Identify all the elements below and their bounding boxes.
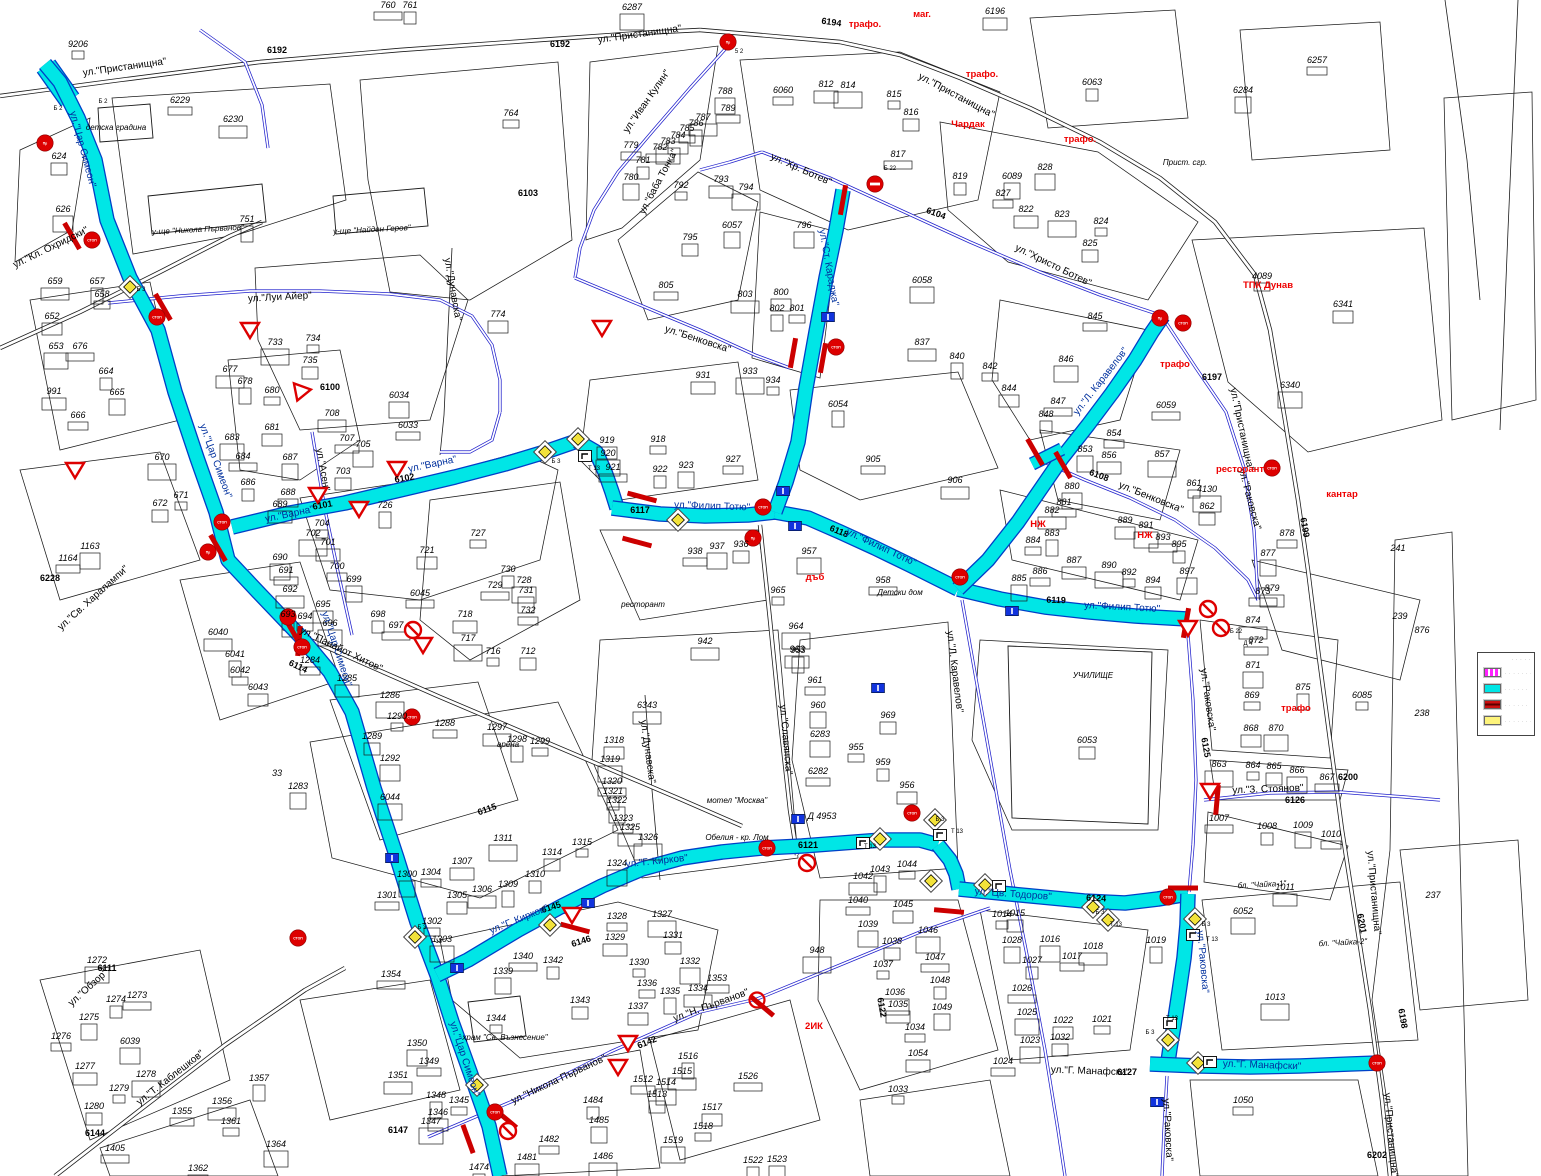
road-code: 6198 xyxy=(1396,1008,1409,1029)
building-footprint xyxy=(1095,228,1107,236)
legend-title: . . . . . xyxy=(1484,656,1531,664)
building-footprint xyxy=(877,971,889,979)
parcel-number: 1018 xyxy=(1083,941,1103,951)
building-footprint xyxy=(72,51,84,59)
parcel-number: 672 xyxy=(152,498,167,508)
building-footprint xyxy=(502,891,514,907)
parcel-number: 803 xyxy=(737,289,752,299)
parcel-number: 1292 xyxy=(380,753,400,763)
parcel-number: 686 xyxy=(240,477,255,487)
sign-code-label: Б 3 xyxy=(552,459,562,465)
parcel-number: 6063 xyxy=(1082,77,1102,87)
building-footprint xyxy=(379,512,391,528)
parcel-number: 1300 xyxy=(397,869,417,879)
parcel-number: 1008 xyxy=(1257,821,1277,831)
yield-sign-icon xyxy=(241,323,259,338)
road-code: 6147 xyxy=(388,1125,408,1135)
sign-code-label: 5 2 xyxy=(735,49,744,55)
building-footprint xyxy=(982,373,998,381)
building-footprint xyxy=(1082,250,1098,262)
parcel-number: 854 xyxy=(1106,428,1121,438)
yield-sign-icon xyxy=(414,638,432,653)
stop-sign-label: СТОП xyxy=(907,811,917,815)
parcel-number: 825 xyxy=(1082,238,1098,248)
parcel-number: 991 xyxy=(46,386,61,396)
parcel-number: 1486 xyxy=(593,1151,613,1161)
building-footprint xyxy=(848,754,864,762)
building-footprint xyxy=(318,420,346,432)
building-footprint xyxy=(810,712,826,728)
sign-code-label: Б 2 xyxy=(99,99,109,105)
parcel-number: 1164 xyxy=(58,553,77,563)
parcel-number: 6045 xyxy=(410,588,431,598)
parcel-number: 694 xyxy=(297,611,312,621)
parcel-number: 689 xyxy=(272,499,287,509)
building-footprint xyxy=(921,964,949,972)
stop-sign-label: СТОП xyxy=(87,238,97,242)
facility-red-label: ТПК Дунав xyxy=(1243,280,1293,291)
parcel-number: 1364 xyxy=(266,1139,286,1149)
parcel-number: 1049 xyxy=(932,1002,952,1012)
road-code: 6200 xyxy=(1338,772,1358,782)
parcel-number: 687 xyxy=(282,452,298,462)
building-footprint xyxy=(805,687,825,695)
building-footprint xyxy=(1249,598,1277,606)
parcel-number: 897 xyxy=(1179,566,1195,576)
street-name-label: ул."Раковска" xyxy=(1198,668,1218,732)
parcel-number: 1334 xyxy=(688,983,708,993)
parcel-number: 842 xyxy=(982,361,997,371)
parcel-number: 927 xyxy=(725,454,741,464)
building-footprint xyxy=(518,617,538,625)
building-footprint xyxy=(1231,918,1255,934)
parcel-number: 938 xyxy=(687,546,702,556)
parcel-number: 1522 xyxy=(743,1155,763,1165)
parcel-number: 1288 xyxy=(435,718,455,728)
parcel-number: 6085 xyxy=(1352,690,1373,700)
parcel-number: 691 xyxy=(278,565,293,575)
building-footprint xyxy=(1243,672,1263,688)
building-footprint xyxy=(346,586,362,602)
building-footprint xyxy=(481,592,509,600)
parcel-number: 1290 xyxy=(387,711,407,721)
road-code: 6126 xyxy=(1285,795,1305,805)
parcel-number: 817 xyxy=(890,149,906,159)
building-footprint xyxy=(880,722,896,734)
building-footprint xyxy=(897,792,917,804)
building-footprint xyxy=(80,553,100,569)
building-footprint xyxy=(806,778,830,786)
road-code: 6144 xyxy=(85,1128,105,1138)
parcel-number: 730 xyxy=(500,564,515,574)
building-footprint xyxy=(335,478,351,490)
road-closure-bar-marker xyxy=(1168,886,1198,891)
sign-code-label: Б 3 xyxy=(1096,910,1106,916)
legend-swatch-magenta xyxy=(1484,668,1501,677)
parcel-number: 1362 xyxy=(188,1163,208,1173)
building-footprint xyxy=(832,411,844,427)
building-footprint xyxy=(1014,216,1038,228)
sign-code-label: Т 13 xyxy=(864,844,877,850)
parcel-number: 942 xyxy=(697,636,712,646)
parcel-number: 734 xyxy=(305,333,320,343)
parcel-number: 964 xyxy=(788,621,803,631)
sign-code-label: Т 13 xyxy=(951,829,964,835)
poi-label: Прист. сгр. xyxy=(1163,158,1207,167)
parcel-number: 1163 xyxy=(80,541,99,551)
parcel-number: 6287 xyxy=(622,2,643,12)
parcel-number: 239 xyxy=(1391,611,1407,621)
parcel-number: 681 xyxy=(264,422,279,432)
building-footprint xyxy=(223,1128,239,1136)
building-footprint xyxy=(905,1034,925,1042)
parcel-number: 1485 xyxy=(589,1115,610,1125)
building-footprint xyxy=(1205,825,1233,833)
building-footprint xyxy=(1123,579,1135,587)
parcel-number: 6284 xyxy=(1233,85,1253,95)
parcel-number: 1045 xyxy=(893,899,914,909)
road-code: 6117 xyxy=(630,505,650,515)
building-footprint xyxy=(772,597,784,605)
parcel-number: 1279 xyxy=(109,1083,129,1093)
parcel-number: 1286 xyxy=(380,690,400,700)
building-footprint xyxy=(769,1166,785,1176)
building-footprint xyxy=(951,363,963,379)
building-footprint xyxy=(1115,527,1135,539)
building-footprint xyxy=(264,397,280,405)
parcel-number: 1329 xyxy=(605,932,625,942)
parcel-number: 1322 xyxy=(607,795,627,805)
parcel-number: 653 xyxy=(48,341,63,351)
building-footprint xyxy=(539,1146,559,1154)
parcel-number: 1023 xyxy=(1020,1035,1040,1045)
sign-code-label: Б 22 xyxy=(1230,629,1243,635)
parcel-number: 676 xyxy=(72,341,87,351)
building-footprint xyxy=(468,896,496,908)
building-footprint xyxy=(547,967,559,979)
building-footprint xyxy=(488,321,508,333)
parcel-number: 700 xyxy=(329,561,344,571)
parcel-number: 782 xyxy=(652,142,667,152)
parcel-number: 837 xyxy=(914,337,930,347)
parcel-number: 718 xyxy=(457,609,472,619)
parcel-number: 726 xyxy=(377,500,392,510)
parcel-number: 33 xyxy=(272,768,282,778)
parcel-number: 1046 xyxy=(918,925,938,935)
parcel-number: 824 xyxy=(1093,216,1108,226)
building-footprint xyxy=(993,200,1013,208)
building-footprint xyxy=(1273,894,1297,906)
parcel-number: 6058 xyxy=(912,275,932,285)
sign-code-label: Б 2 xyxy=(54,106,64,112)
parcel-number: 1021 xyxy=(1092,1014,1112,1024)
parcel-number: 884 xyxy=(1025,535,1040,545)
facility-red-label: трафо. xyxy=(1064,134,1096,145)
stop-sign-label: Пр xyxy=(726,40,731,44)
building-footprint xyxy=(589,1163,617,1176)
building-footprint xyxy=(453,621,477,633)
building-footprint xyxy=(353,451,373,467)
building-footprint xyxy=(1307,67,1327,75)
parcel-number: 1513 xyxy=(647,1089,667,1099)
parcel-number: 657 xyxy=(89,276,105,286)
parcel-block xyxy=(1190,1080,1378,1176)
parcel-number: 659 xyxy=(47,276,62,286)
parcel-number: 955 xyxy=(848,742,864,752)
building-footprint xyxy=(1052,1044,1068,1056)
parcel-block xyxy=(255,255,468,430)
parcel-number: 934 xyxy=(765,375,780,385)
parcel-number: 1311 xyxy=(493,833,512,843)
parcel-number: 1514 xyxy=(656,1077,676,1087)
parcel-number: 890 xyxy=(1101,560,1116,570)
parcel-number: 1332 xyxy=(680,956,700,966)
parcel-number: 624 xyxy=(51,151,66,161)
building-footprint xyxy=(654,292,678,300)
parcel-number: 1349 xyxy=(419,1056,439,1066)
parcel-number: 6052 xyxy=(1233,906,1253,916)
parcel-number: 963 xyxy=(789,644,804,654)
building-footprint xyxy=(916,937,940,953)
road-code: 6192 xyxy=(550,39,570,49)
building-footprint xyxy=(628,1013,648,1025)
building-footprint xyxy=(1233,1107,1253,1115)
parcel-number: 1481 xyxy=(517,1152,537,1162)
no-entry-bar xyxy=(870,183,880,186)
street-name-label: ул."Обзор" xyxy=(66,966,111,1008)
parcel-number: 9206 xyxy=(68,39,88,49)
building-footprint xyxy=(509,963,537,971)
parcel-number: 788 xyxy=(717,86,732,96)
parcel-number: 882 xyxy=(1044,505,1059,515)
parcel-number: 1326 xyxy=(638,832,658,842)
road-code: 6115 xyxy=(476,801,498,817)
parcel-number: 1357 xyxy=(249,1073,270,1083)
building-footprint xyxy=(903,119,919,131)
building-footprint xyxy=(675,192,687,200)
building-footprint xyxy=(253,1085,265,1101)
parcel-number: 237 xyxy=(1424,890,1441,900)
sign-code-label: Т 13 xyxy=(1110,922,1123,928)
yield-sign-icon xyxy=(593,321,611,336)
parcel-number: 870 xyxy=(1268,723,1283,733)
parcel-number: 1336 xyxy=(637,978,657,988)
facility-red-label: Чардак xyxy=(951,119,985,130)
parcel-number: 1526 xyxy=(738,1071,758,1081)
parcel-number: 1515 xyxy=(672,1066,693,1076)
parcel-number: 702 xyxy=(305,528,320,538)
road-code: 6199 xyxy=(1298,517,1311,538)
building-footprint xyxy=(767,387,779,395)
parcel-number: 801 xyxy=(789,303,804,313)
parcel-number: 1301 xyxy=(377,890,397,900)
parcel-number: 1047 xyxy=(925,952,946,962)
info-sign-glyph xyxy=(587,900,589,906)
yield-sign-icon xyxy=(289,383,311,403)
parcel-number: 1325 xyxy=(620,822,641,832)
building-footprint xyxy=(495,978,511,994)
parcel-number: 1016 xyxy=(1040,934,1060,944)
road-code: 6194 xyxy=(821,16,842,29)
parcel-number: 6257 xyxy=(1307,55,1328,65)
road-code: 6103 xyxy=(518,188,538,198)
parcel-number: 828 xyxy=(1037,162,1052,172)
street-name-label: ул."Хр. Ботев" xyxy=(769,151,834,188)
stop-sign-label: СТОП xyxy=(831,345,841,349)
building-footprint xyxy=(908,349,936,361)
building-footprint xyxy=(954,183,966,195)
info-sign-glyph xyxy=(391,855,393,861)
parcel-number: 792 xyxy=(673,180,688,190)
parcel-number: 665 xyxy=(109,387,125,397)
building-footprint xyxy=(1333,311,1353,323)
parcel-number: 1523 xyxy=(767,1154,787,1164)
parcel-block xyxy=(860,1080,1010,1176)
building-footprint xyxy=(607,923,627,931)
minor-line xyxy=(1445,0,1480,300)
parcel-number: 1319 xyxy=(600,754,620,764)
map-legend: . . . . . . . . . . . . . . . . . . . . … xyxy=(1477,652,1535,736)
building-footprint xyxy=(66,353,94,361)
sign-code-label: Б 3 xyxy=(137,287,147,293)
parcel-number: 868 xyxy=(1243,723,1258,733)
building-footprint xyxy=(73,1073,97,1085)
building-footprint xyxy=(849,883,877,895)
parcel-number: 6042 xyxy=(230,665,250,675)
building-footprint xyxy=(906,1060,930,1072)
parcel-number: 892 xyxy=(1121,567,1136,577)
building-footprint xyxy=(1046,540,1058,556)
building-footprint xyxy=(983,18,1007,30)
parcel-number: 1354 xyxy=(381,969,401,979)
parcel-number: 814 xyxy=(840,80,855,90)
parcel-number: 1343 xyxy=(570,995,590,1005)
parcel-number: 6043 xyxy=(248,682,268,692)
parcel-number: 920 xyxy=(600,448,615,458)
stop-sign-label: Пр xyxy=(751,536,756,540)
parcel-number: 717 xyxy=(460,633,476,643)
building-footprint xyxy=(934,987,946,999)
parcel-number: 690 xyxy=(272,552,287,562)
parcel-number: 6039 xyxy=(120,1036,140,1046)
parcel-number: 856 xyxy=(1101,450,1116,460)
building-footprint xyxy=(683,558,707,566)
building-footprint xyxy=(1008,995,1036,1003)
building-footprint xyxy=(502,576,514,588)
parcel-number: 1337 xyxy=(628,1001,649,1011)
parcel-number: 812 xyxy=(818,79,833,89)
building-footprint xyxy=(264,1151,288,1167)
parcel-number: 802 xyxy=(769,303,784,313)
parcel-number: 840 xyxy=(949,351,964,361)
building-footprint xyxy=(1025,547,1041,555)
building-footprint xyxy=(489,845,517,861)
parcel-number: 1330 xyxy=(629,957,649,967)
parcel-number: 864 xyxy=(1245,760,1260,770)
stop-sign-label: СТОП xyxy=(1178,321,1188,325)
building-footprint xyxy=(789,315,805,323)
building-footprint xyxy=(470,540,486,548)
parcel-number: 815 xyxy=(886,89,902,99)
parcel-number: 707 xyxy=(339,433,355,443)
road-code: 6146 xyxy=(570,933,592,949)
parcel-number: 1025 xyxy=(1017,1007,1038,1017)
parcel-number: 729 xyxy=(487,580,502,590)
parcel-number: 922 xyxy=(652,464,667,474)
parcel-number: 708 xyxy=(324,408,339,418)
building-footprint xyxy=(1148,461,1176,477)
direction-sign-box xyxy=(579,451,592,462)
building-footprint xyxy=(846,907,870,915)
parcel-number: 883 xyxy=(1044,528,1059,538)
parcel-number: 1351 xyxy=(388,1070,408,1080)
building-footprint xyxy=(814,91,838,103)
parcel-number: 1328 xyxy=(607,911,627,921)
building-footprint xyxy=(380,765,400,781)
parcel-number: 874 xyxy=(1245,615,1260,625)
parcel-number: 1033 xyxy=(888,1084,908,1094)
parcel-number: 848 xyxy=(1038,409,1053,419)
parcel-number: 1516 xyxy=(678,1051,698,1061)
parcel-number: 1276 xyxy=(51,1031,71,1041)
parcel-number: 1320 xyxy=(602,776,622,786)
stop-sign-label: СТОП xyxy=(1163,895,1173,899)
parcel-number: 1297 xyxy=(487,722,508,732)
building-footprint xyxy=(229,463,257,471)
building-footprint xyxy=(242,489,254,501)
parcel-number: 931 xyxy=(695,370,710,380)
parcel-number: 793 xyxy=(713,174,728,184)
parcel-number: 693 xyxy=(280,609,295,619)
building-footprint xyxy=(1150,947,1162,963)
parcel-number: 688 xyxy=(280,487,295,497)
parcel-number: 845 xyxy=(1087,311,1103,321)
legend-swatch-yellow xyxy=(1484,716,1501,725)
parcel-block xyxy=(818,900,998,1090)
building-footprint xyxy=(649,1101,665,1113)
building-footprint xyxy=(44,353,68,369)
building-footprint xyxy=(1040,946,1060,962)
facility-red-label: кантар xyxy=(1326,489,1358,500)
parcel-number: 1361 xyxy=(221,1116,241,1126)
building-footprint xyxy=(747,1167,759,1176)
building-footprint xyxy=(1094,1026,1110,1034)
parcel-number: 827 xyxy=(995,188,1011,198)
sign-code-label: Б 3 xyxy=(418,925,428,931)
parcel-number: 6343 xyxy=(637,700,657,710)
building-footprint xyxy=(1015,1019,1039,1035)
facility-red-label: 2ИК xyxy=(805,1021,823,1032)
parcel-number: 794 xyxy=(738,182,753,192)
building-footprint xyxy=(168,107,192,115)
sign-code-label: Т 13 xyxy=(1206,937,1219,943)
parcel-number: 670 xyxy=(154,452,169,462)
parcel-number: 701 xyxy=(320,537,335,547)
parcel-number: 1048 xyxy=(930,975,950,985)
parcel-number: 779 xyxy=(623,140,638,150)
building-footprint xyxy=(941,487,969,499)
road-code: 6119 xyxy=(1046,595,1066,606)
stop-sign-label: СТОП xyxy=(955,575,965,579)
poi-label: арена xyxy=(497,740,520,749)
building-footprint xyxy=(736,378,764,394)
parcel-number: 6196 xyxy=(985,6,1005,16)
building-footprint xyxy=(680,968,700,984)
info-sign-glyph xyxy=(456,965,458,971)
parcel-number: 764 xyxy=(503,108,518,118)
facility-red-label: НЖ xyxy=(1030,519,1046,530)
minor-line xyxy=(1500,0,1518,430)
